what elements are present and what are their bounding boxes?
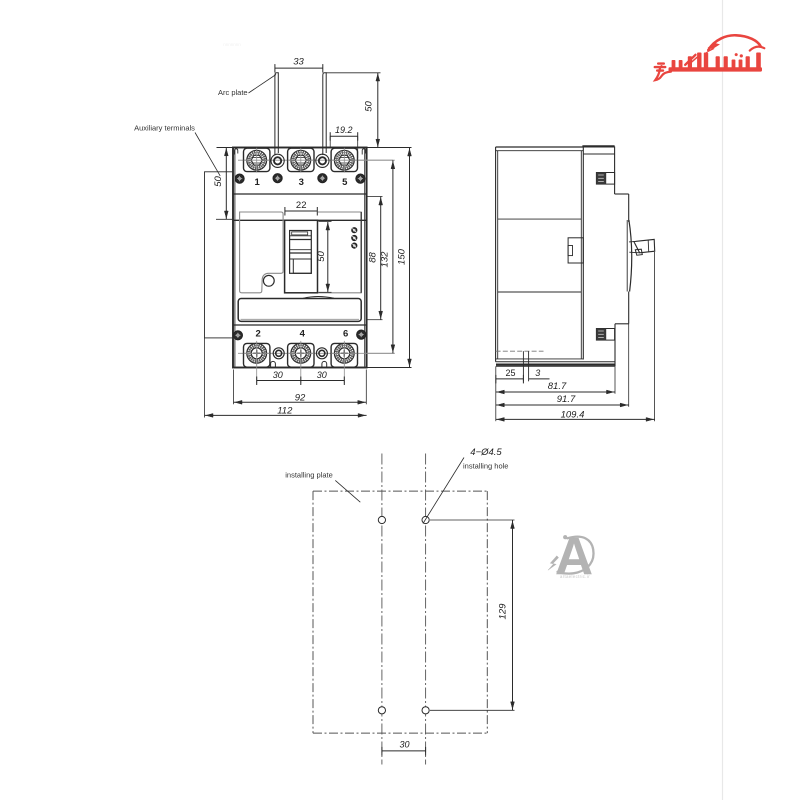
- svg-text:112: 112: [277, 405, 293, 416]
- svg-text:installing hole: installing hole: [463, 462, 508, 471]
- svg-text:30: 30: [273, 370, 283, 380]
- svg-text:50: 50: [316, 251, 327, 262]
- svg-text:132: 132: [380, 251, 391, 268]
- svg-text:91.7: 91.7: [557, 394, 576, 405]
- svg-text:4−Ø4.5: 4−Ø4.5: [470, 447, 502, 458]
- svg-text:nnnnnnn: nnnnnnn: [223, 42, 241, 47]
- svg-text:3: 3: [535, 368, 540, 378]
- svg-text:5: 5: [342, 177, 348, 188]
- svg-text:129: 129: [498, 603, 509, 620]
- svg-text:33: 33: [293, 57, 304, 68]
- svg-text:81.7: 81.7: [548, 381, 567, 392]
- svg-text:88: 88: [368, 252, 379, 263]
- svg-text:30: 30: [317, 370, 327, 380]
- svg-text:92: 92: [295, 393, 306, 404]
- svg-text:22: 22: [296, 200, 307, 211]
- svg-text:109.4: 109.4: [561, 409, 585, 420]
- svg-text:50: 50: [213, 176, 224, 187]
- svg-text:6: 6: [343, 328, 348, 339]
- svg-text:artaelectric.ir: artaelectric.ir: [560, 574, 590, 579]
- svg-text:19.2: 19.2: [335, 125, 353, 135]
- svg-text:50: 50: [364, 101, 375, 112]
- svg-text:3: 3: [299, 177, 304, 188]
- svg-text:installing plate: installing plate: [285, 471, 333, 480]
- svg-text:25: 25: [505, 368, 515, 378]
- svg-text:4: 4: [300, 328, 306, 339]
- svg-text:30: 30: [399, 740, 409, 750]
- svg-text:2: 2: [256, 328, 261, 339]
- svg-text:1: 1: [255, 177, 261, 188]
- svg-text:Auxiliary terminals: Auxiliary terminals: [134, 124, 195, 133]
- svg-text:150: 150: [396, 248, 407, 265]
- svg-text:Arc plate: Arc plate: [218, 88, 248, 97]
